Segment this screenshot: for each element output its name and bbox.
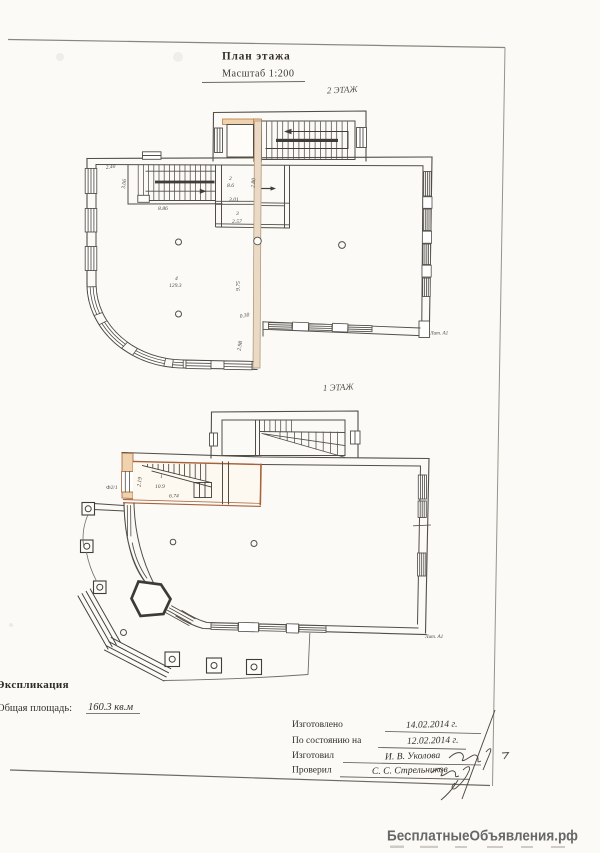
svg-text:Ф2/1: Ф2/1 — [106, 485, 118, 491]
svg-text:Экспликация: Экспликация — [0, 679, 69, 691]
svg-text:2.57: 2.57 — [232, 219, 242, 225]
svg-text:Масштаб 1:200: Масштаб 1:200 — [222, 69, 294, 80]
svg-text:1: 1 — [160, 474, 163, 480]
svg-text:По состоянию на: По состоянию на — [292, 736, 362, 746]
svg-text:Изготовил: Изготовил — [292, 751, 334, 761]
svg-text:План этажа: План этажа — [222, 51, 291, 63]
svg-text:8.86: 8.86 — [158, 206, 168, 212]
svg-text:10.9: 10.9 — [155, 484, 165, 490]
svg-text:3: 3 — [235, 211, 239, 217]
svg-text:4: 4 — [175, 276, 178, 282]
svg-text:2.19: 2.19 — [137, 477, 144, 488]
svg-text:2.80: 2.80 — [251, 178, 258, 188]
svg-text:160.3 кв.м: 160.3 кв.м — [88, 702, 133, 713]
svg-text:12.02.2014 г.: 12.02.2014 г. — [407, 735, 459, 747]
svg-text:6.74: 6.74 — [169, 494, 179, 500]
svg-text:9.75: 9.75 — [236, 281, 243, 291]
svg-text:Изготовлено: Изготовлено — [292, 720, 343, 730]
svg-text:БесплатныеОбъявления.рф: БесплатныеОбъявления.рф — [387, 829, 578, 845]
svg-text:Лит. А1: Лит. А1 — [429, 331, 449, 337]
svg-text:Лит. А1: Лит. А1 — [424, 634, 444, 640]
svg-text:1 ЭТАЖ: 1 ЭТАЖ — [323, 381, 355, 393]
svg-text:Проверил: Проверил — [292, 766, 332, 776]
svg-text:129.3: 129.3 — [169, 283, 182, 289]
svg-text:И. В. Уколова: И. В. Уколова — [384, 750, 441, 762]
svg-text:2 ЭТАЖ: 2 ЭТАЖ — [327, 84, 359, 96]
svg-text:8.6: 8.6 — [227, 183, 234, 189]
svg-text:3.01: 3.01 — [228, 197, 239, 203]
svg-text:Общая площадь:: Общая площадь: — [0, 703, 72, 714]
svg-text:14.02.2014 г.: 14.02.2014 г. — [406, 719, 458, 731]
svg-text:С. С. Стрельников: С. С. Стрельников — [372, 764, 448, 777]
svg-text:2: 2 — [229, 176, 232, 182]
